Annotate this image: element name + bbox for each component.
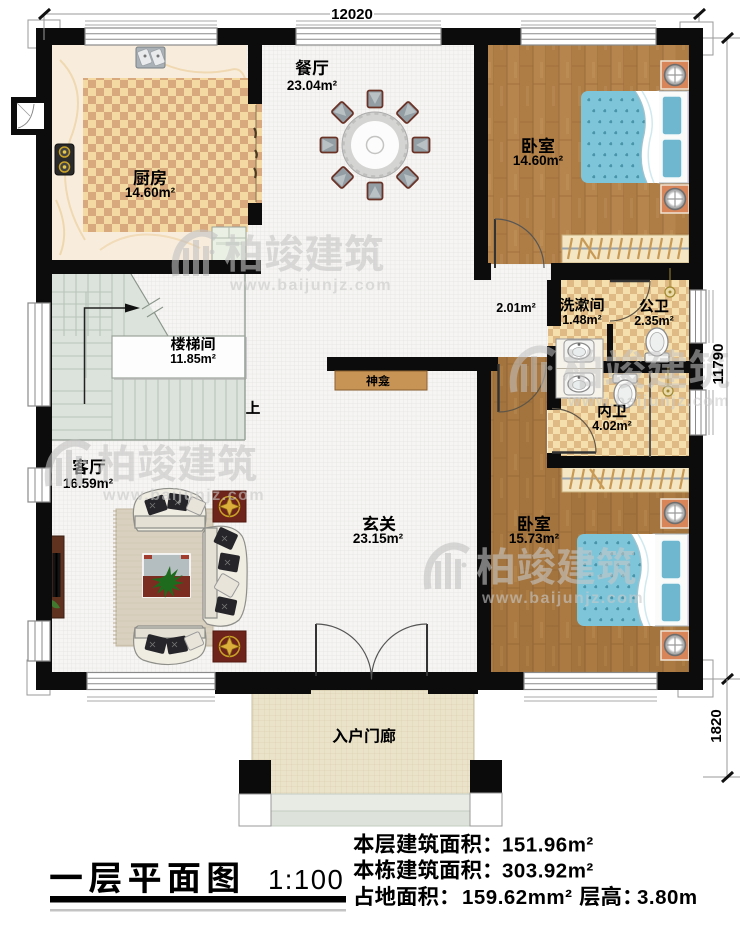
svg-text:2.35m²: 2.35m² — [634, 314, 674, 328]
svg-text:303.92m²: 303.92m² — [502, 860, 594, 883]
svg-text:2.01m²: 2.01m² — [496, 301, 536, 315]
svg-text:23.04m²: 23.04m² — [287, 78, 338, 93]
svg-text:11.85m²: 11.85m² — [170, 352, 216, 366]
svg-text:151.96m²: 151.96m² — [502, 834, 594, 857]
svg-text:14.60m²: 14.60m² — [125, 185, 176, 200]
svg-text:3.80m: 3.80m — [637, 886, 698, 909]
svg-text:159.62mm²: 159.62mm² — [462, 886, 572, 909]
svg-text:4.02m²: 4.02m² — [592, 419, 632, 433]
svg-text:1820: 1820 — [708, 709, 725, 742]
svg-text:12020: 12020 — [331, 6, 373, 23]
svg-text:www.baijunjz.com: www.baijunjz.com — [102, 487, 265, 504]
svg-text:www.baijunjz.com: www.baijunjz.com — [567, 393, 730, 410]
svg-text:14.60m²: 14.60m² — [513, 153, 564, 168]
svg-text:www.baijunjz.com: www.baijunjz.com — [481, 590, 644, 607]
svg-text:1:100: 1:100 — [268, 864, 344, 895]
svg-text:15.73m²: 15.73m² — [509, 531, 560, 546]
svg-text:1.48m²: 1.48m² — [562, 313, 602, 327]
svg-text:www.baijunjz.com: www.baijunjz.com — [229, 277, 392, 294]
svg-text:23.15m²: 23.15m² — [353, 531, 404, 546]
svg-text:11790: 11790 — [710, 344, 727, 385]
